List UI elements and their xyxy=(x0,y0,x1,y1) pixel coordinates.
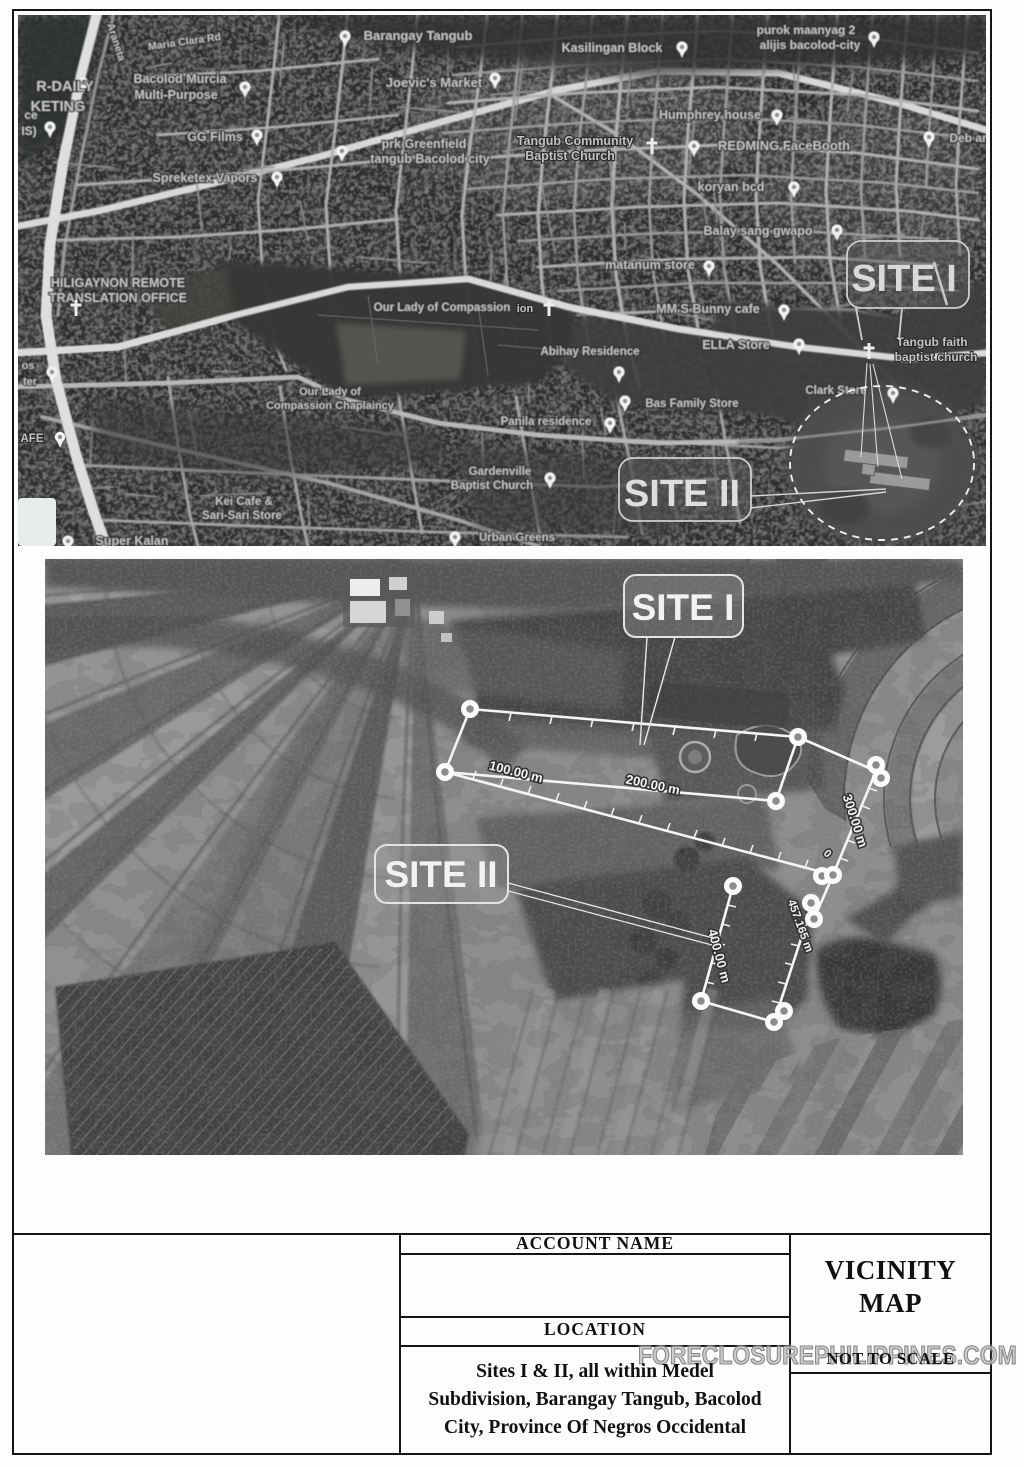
svg-text:alijis bacolod-city: alijis bacolod-city xyxy=(760,38,861,52)
svg-text:Bas Family Store: Bas Family Store xyxy=(645,398,738,410)
svg-text:REDMING FaceBooth: REDMING FaceBooth xyxy=(718,138,850,153)
svg-text:ce: ce xyxy=(24,108,38,122)
svg-text:Baptist Church: Baptist Church xyxy=(451,480,533,492)
svg-text:Barangay Tangub: Barangay Tangub xyxy=(364,28,473,43)
svg-text:ter: ter xyxy=(23,376,38,388)
svg-text:ELLA Store: ELLA Store xyxy=(702,338,770,352)
svg-text:Kasilingan Block: Kasilingan Block xyxy=(562,41,663,55)
svg-text:R-DAILY: R-DAILY xyxy=(36,79,94,95)
svg-text:ion: ion xyxy=(517,303,534,315)
svg-text:Clark Store: Clark Store xyxy=(805,385,866,397)
svg-text:MM S Bunny cafe: MM S Bunny cafe xyxy=(656,302,760,316)
svg-text:Multi-Purpose: Multi-Purpose xyxy=(134,88,217,102)
svg-text:HILIGAYNON REMOTE: HILIGAYNON REMOTE xyxy=(51,276,185,290)
svg-text:Balay sang gwapo: Balay sang gwapo xyxy=(703,224,812,238)
svg-text:koryan bcd: koryan bcd xyxy=(698,180,765,194)
svg-text:Urban Greens: Urban Greens xyxy=(479,532,555,544)
svg-text:Sari-Sari Store: Sari-Sari Store xyxy=(202,510,282,522)
svg-text:Tangub faith: Tangub faith xyxy=(896,335,967,349)
svg-text:SITE I: SITE I xyxy=(632,587,735,628)
svg-text:KETING: KETING xyxy=(31,99,86,115)
svg-text:baptist church: baptist church xyxy=(895,350,978,364)
svg-text:IS): IS) xyxy=(21,124,36,138)
svg-text:Gardenville: Gardenville xyxy=(469,466,532,478)
svg-text:Bacolod Murcia: Bacolod Murcia xyxy=(133,72,227,86)
svg-text:Spreketex Vapors: Spreketex Vapors xyxy=(153,171,258,185)
svg-text:SITE II: SITE II xyxy=(624,473,740,515)
svg-text:AFE: AFE xyxy=(21,433,44,445)
svg-text:Abihay Residence: Abihay Residence xyxy=(540,346,639,358)
svg-text:Humphrey house: Humphrey house xyxy=(659,108,761,122)
svg-text:Joevic's Market: Joevic's Market xyxy=(386,75,483,90)
svg-text:os: os xyxy=(22,360,35,372)
svg-text:Our Lady of: Our Lady of xyxy=(299,386,361,398)
svg-text:Kei Cafe &: Kei Cafe & xyxy=(215,496,273,508)
svg-text:Baptist Church: Baptist Church xyxy=(525,149,615,163)
svg-text:SITE I: SITE I xyxy=(851,258,957,300)
svg-text:TRANSLATION OFFICE: TRANSLATION OFFICE xyxy=(49,291,187,305)
svg-text:Our Lady of Compassion: Our Lady of Compassion xyxy=(374,302,511,314)
svg-text:Compassion Chaplaincy: Compassion Chaplaincy xyxy=(266,400,395,412)
svg-text:tangub Bacolod city: tangub Bacolod city xyxy=(370,152,490,166)
svg-text:Panila residence: Panila residence xyxy=(501,416,592,428)
svg-text:purok maanyag 2: purok maanyag 2 xyxy=(757,23,856,37)
svg-text:GG Films: GG Films xyxy=(187,130,243,144)
svg-text:SITE II: SITE II xyxy=(384,854,497,895)
svg-text:Deb ar: Deb ar xyxy=(949,131,986,145)
svg-text:Super Kalan: Super Kalan xyxy=(96,534,169,546)
svg-text:prk Greenfield: prk Greenfield xyxy=(382,137,467,151)
svg-text:matanum store: matanum store xyxy=(605,258,695,272)
svg-text:Tangub Community: Tangub Community xyxy=(517,134,633,148)
